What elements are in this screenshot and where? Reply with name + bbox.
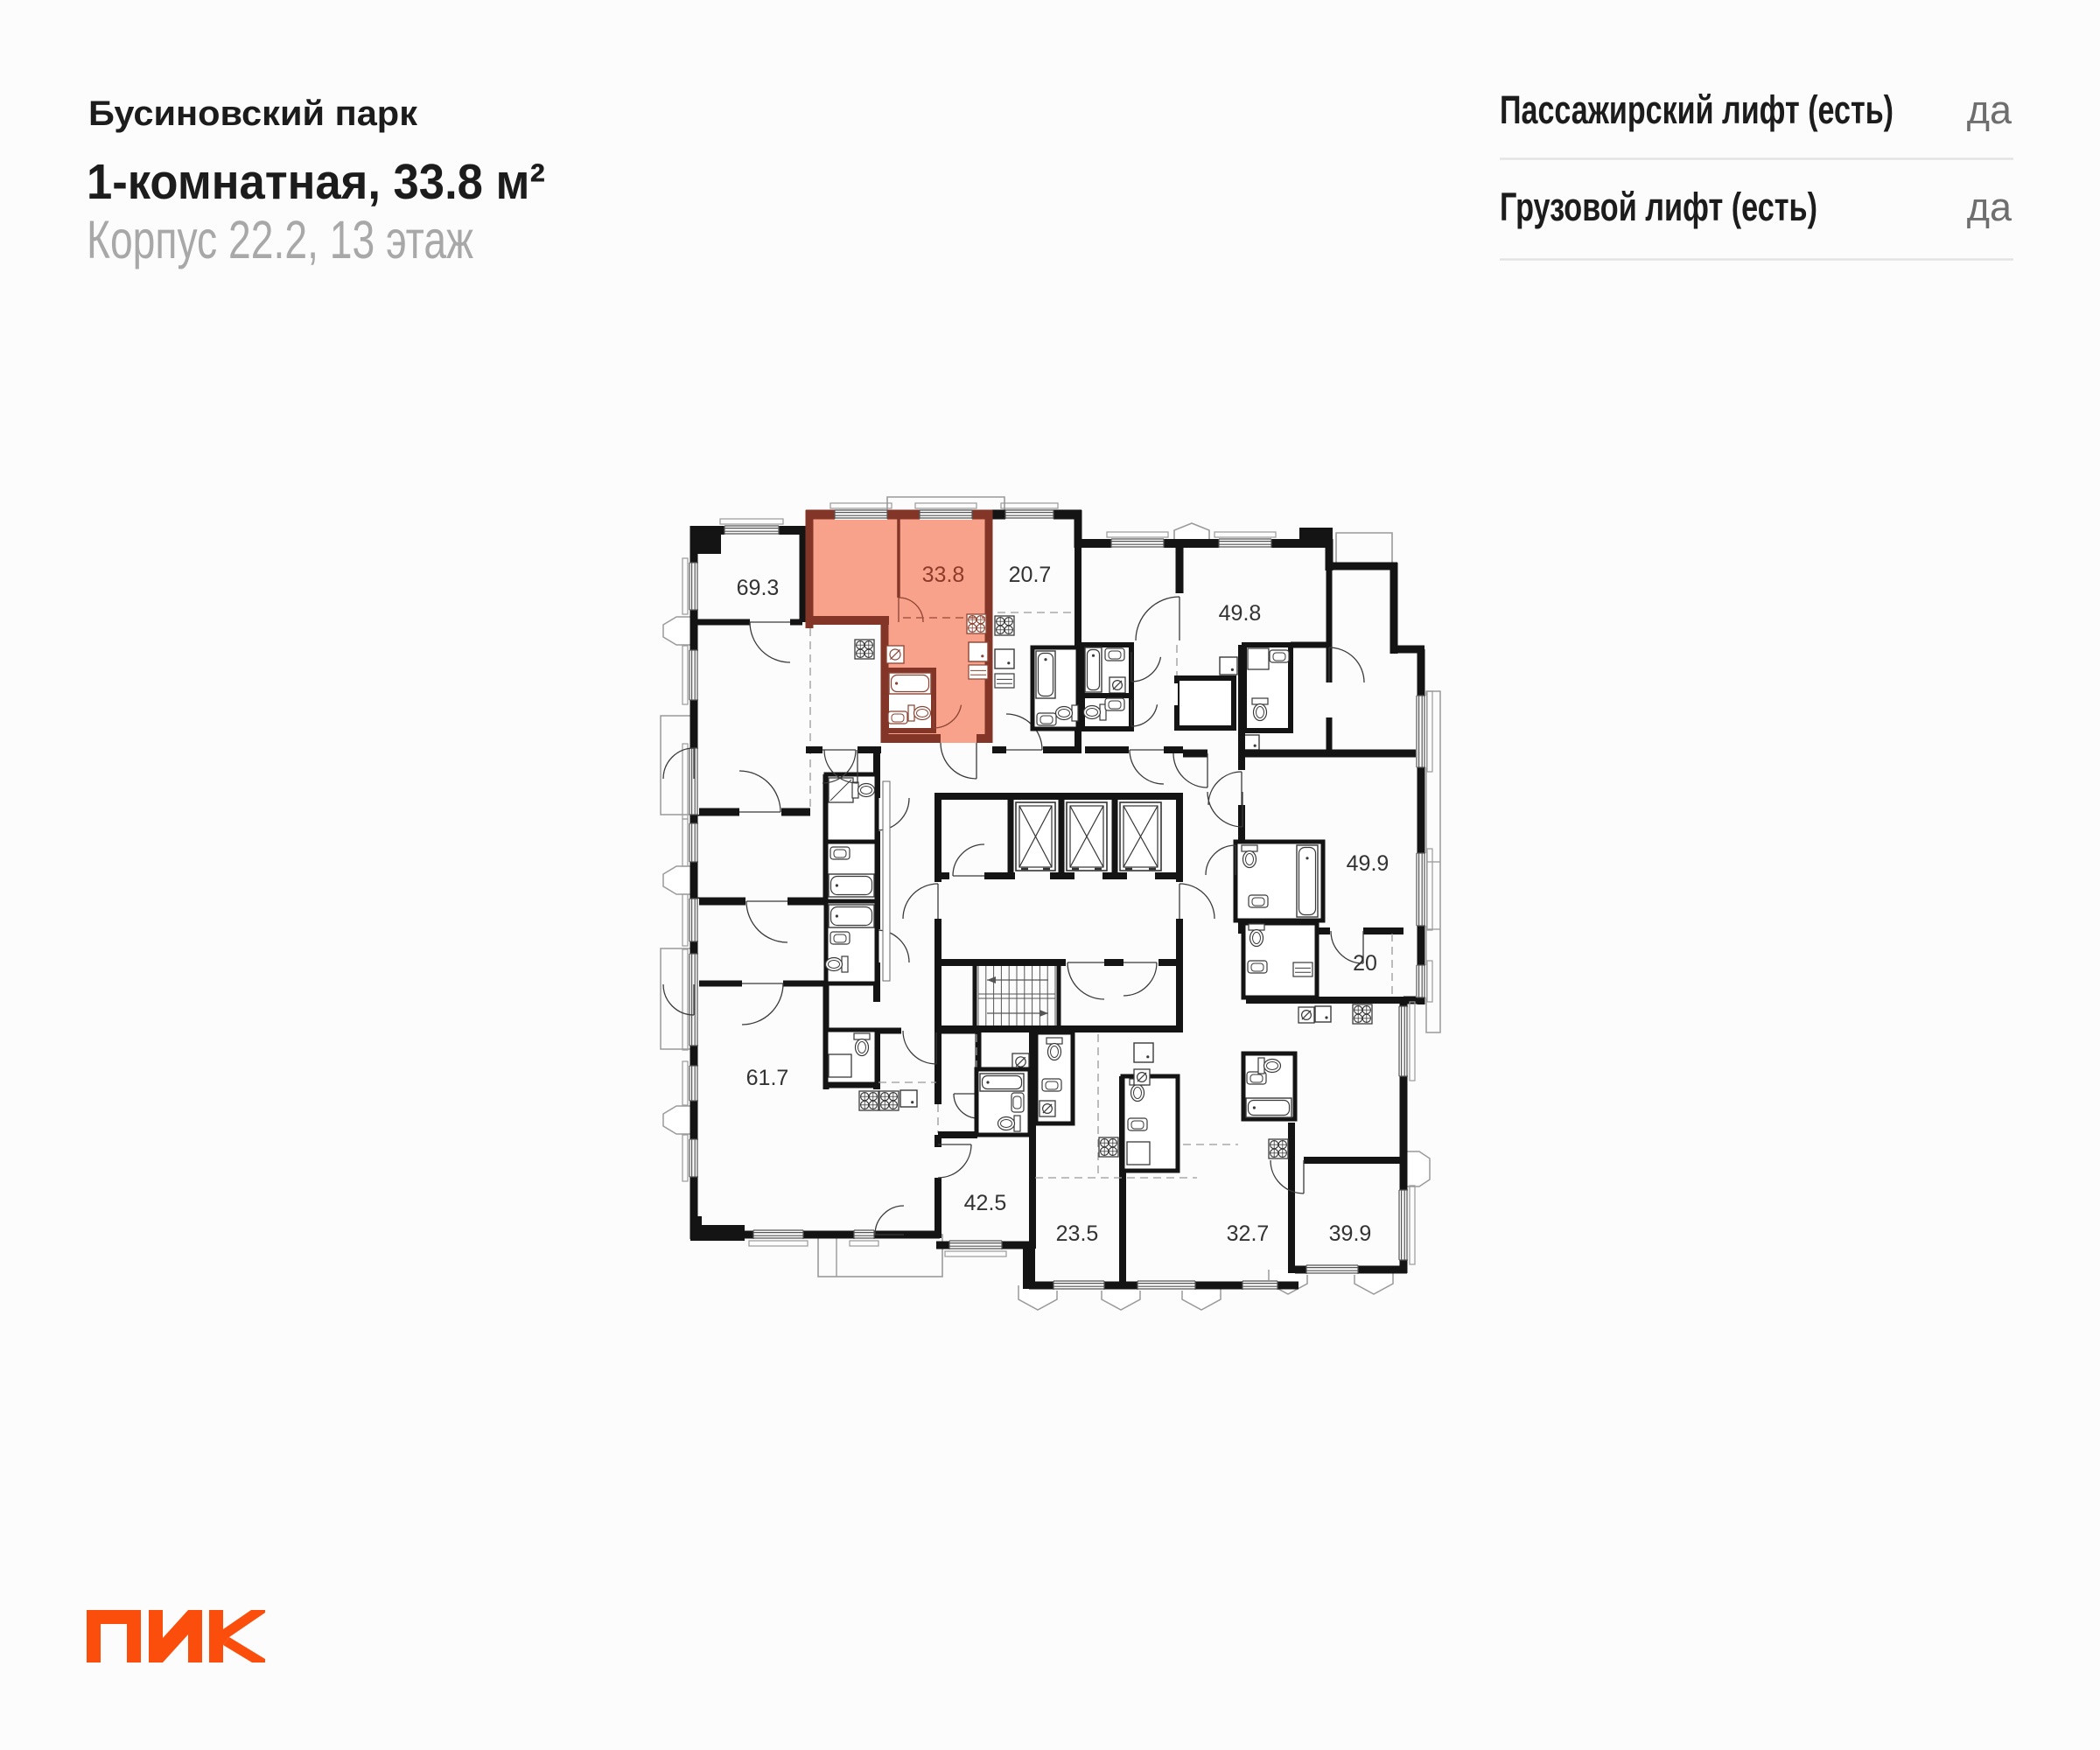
svg-text:42.5: 42.5 xyxy=(964,1191,1007,1215)
svg-text:20: 20 xyxy=(1353,951,1377,976)
svg-text:49.9: 49.9 xyxy=(1347,851,1389,876)
svg-text:49.8: 49.8 xyxy=(1219,601,1262,626)
svg-text:69.3: 69.3 xyxy=(737,576,780,600)
svg-text:Грузовой лифт (есть): Грузовой лифт (есть) xyxy=(1500,185,1817,229)
svg-text:33.8: 33.8 xyxy=(922,563,965,587)
svg-text:39.9: 39.9 xyxy=(1329,1221,1372,1246)
svg-text:да: да xyxy=(1967,185,2012,229)
svg-text:23.5: 23.5 xyxy=(1056,1221,1099,1246)
svg-text:61.7: 61.7 xyxy=(746,1066,789,1090)
svg-text:32.7: 32.7 xyxy=(1227,1221,1270,1246)
svg-text:Корпус 22.2, 13 этаж: Корпус 22.2, 13 этаж xyxy=(87,210,473,269)
svg-text:Пассажирский лифт (есть): Пассажирский лифт (есть) xyxy=(1500,87,1893,132)
svg-text:1-комнатная, 33.8 м²: 1-комнатная, 33.8 м² xyxy=(87,154,545,210)
svg-text:да: да xyxy=(1967,87,2012,132)
svg-text:Бусиновский парк: Бусиновский парк xyxy=(88,94,418,133)
svg-text:20.7: 20.7 xyxy=(1009,563,1052,587)
